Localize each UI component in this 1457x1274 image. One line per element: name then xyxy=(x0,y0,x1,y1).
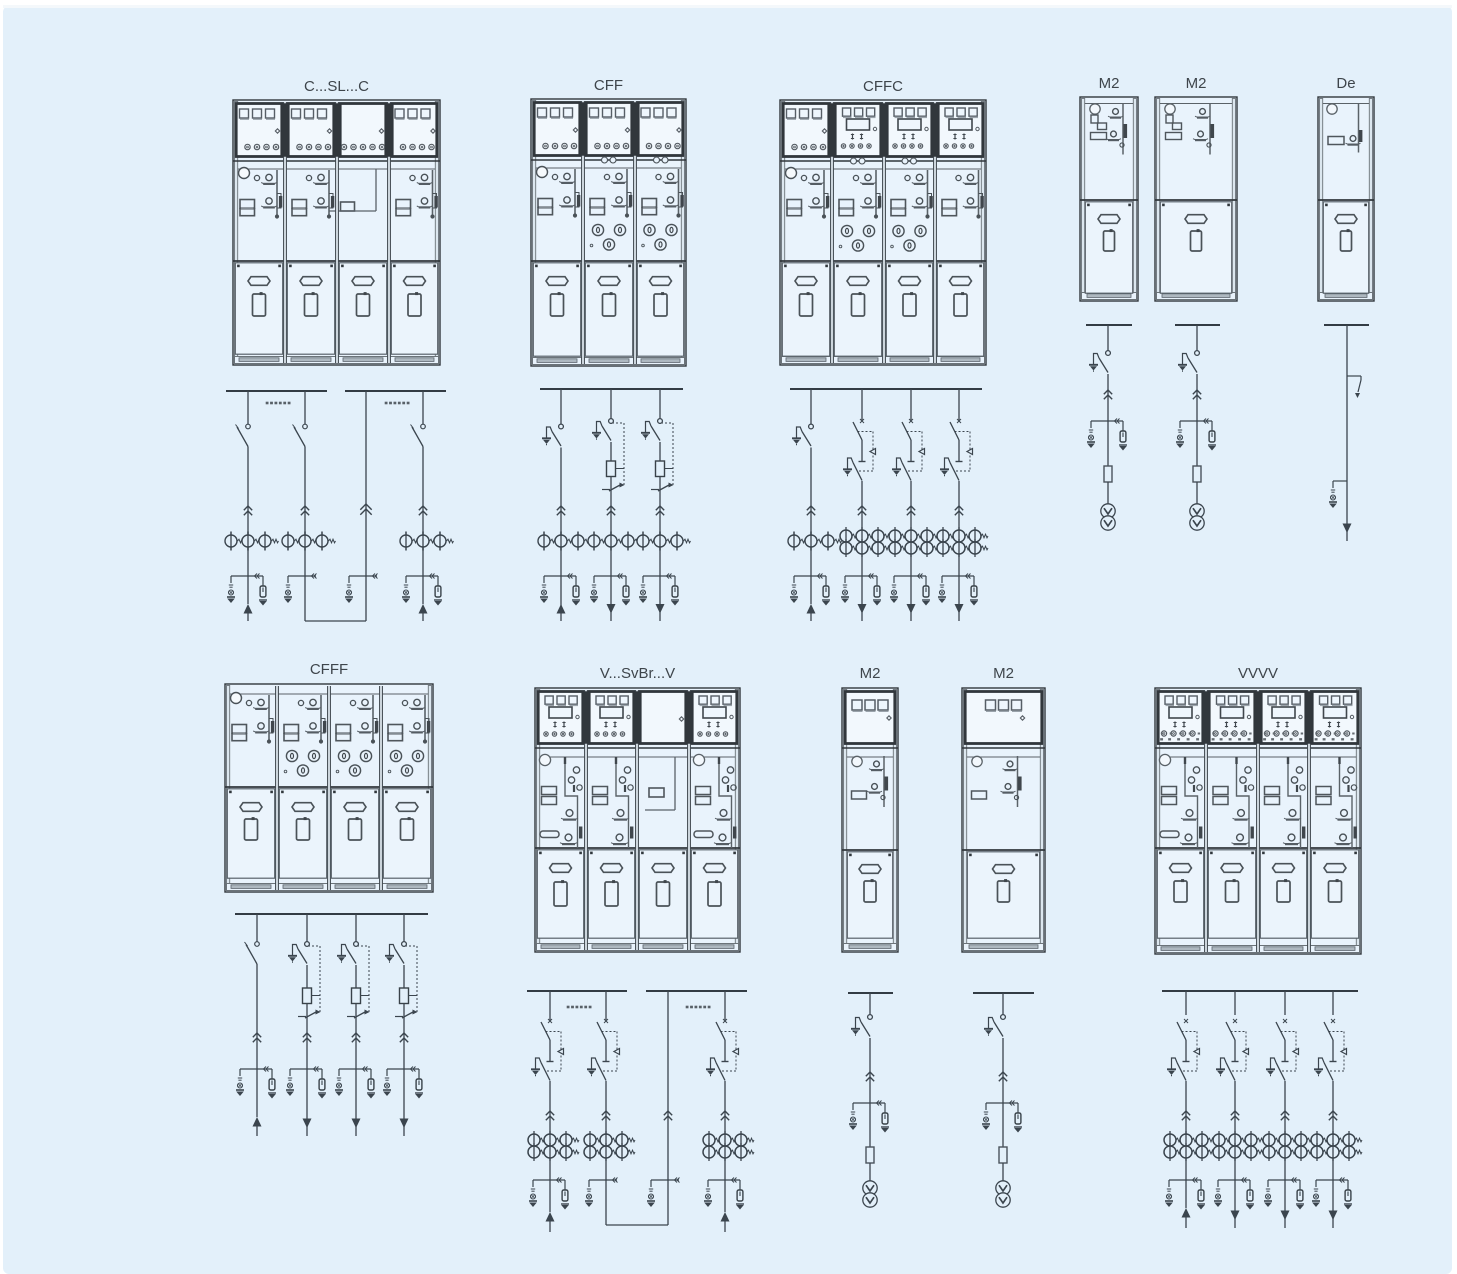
svg-text:De: De xyxy=(1336,75,1355,92)
svg-text:CFFF: CFFF xyxy=(310,661,348,678)
svg-text:M2: M2 xyxy=(1099,75,1120,92)
svg-text:VVVV: VVVV xyxy=(1238,665,1278,682)
svg-text:M2: M2 xyxy=(860,665,881,682)
svg-text:M2: M2 xyxy=(993,665,1014,682)
svg-text:V...SvBr...V: V...SvBr...V xyxy=(600,665,675,682)
svg-text:CFFC: CFFC xyxy=(863,78,903,95)
svg-text:M2: M2 xyxy=(1186,75,1207,92)
svg-text:C...SL...C: C...SL...C xyxy=(304,78,369,95)
svg-text:CFF: CFF xyxy=(594,77,623,94)
